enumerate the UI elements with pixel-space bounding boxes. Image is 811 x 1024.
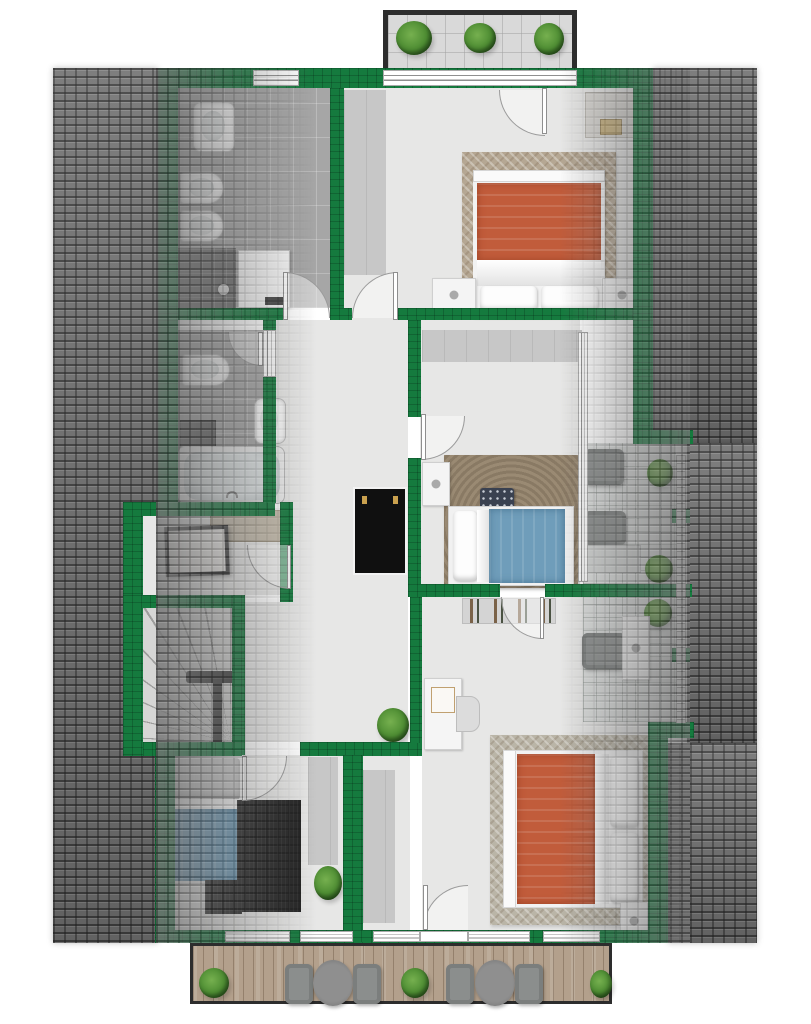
window-bath2-pass bbox=[263, 330, 276, 377]
sink bbox=[193, 102, 235, 152]
wall-bath2-right-b bbox=[263, 377, 276, 503]
wall-bed2-bottom-a bbox=[408, 584, 500, 597]
balcony-top bbox=[383, 10, 577, 72]
hallway-floor-upper bbox=[275, 320, 408, 502]
wall-bed2-bottom-b bbox=[545, 584, 692, 597]
terrace-railing bbox=[676, 455, 686, 723]
wall-left-lower bbox=[155, 742, 175, 943]
roof-right-lower bbox=[668, 743, 757, 943]
deck-bottom bbox=[190, 943, 612, 1004]
bed-pillow-bottom bbox=[610, 833, 638, 903]
bed-sheet-fold bbox=[595, 754, 609, 904]
door-leaf-bathroom-large bbox=[283, 272, 288, 320]
desk-chair bbox=[456, 696, 480, 732]
black-rug-main bbox=[237, 800, 301, 912]
deck-chair-4 bbox=[515, 964, 543, 1004]
picture-frame bbox=[164, 525, 230, 577]
wall-mid-a bbox=[178, 308, 283, 320]
desk-shelf bbox=[431, 687, 455, 713]
bed-duvet-orange bbox=[477, 183, 601, 261]
bed-duvet-blue bbox=[489, 509, 565, 583]
deck-chair-3 bbox=[446, 964, 474, 1004]
nightstand-middle bbox=[422, 462, 450, 506]
window-balcony-band bbox=[383, 70, 577, 86]
shower-head-icon bbox=[218, 284, 229, 295]
wall-left-mid bbox=[123, 502, 143, 756]
door-leaf-bathroom-small bbox=[258, 332, 263, 366]
hallway-plant bbox=[377, 708, 409, 742]
deck-planter-2 bbox=[401, 968, 429, 998]
window-bathroom-top bbox=[253, 70, 299, 86]
bed-footboard bbox=[504, 751, 516, 907]
wall-bath1-right bbox=[330, 88, 344, 320]
double-bed-orange-top bbox=[473, 170, 605, 318]
floor-plan-canvas bbox=[0, 0, 811, 1024]
wall-bed2-left-b bbox=[408, 458, 421, 584]
wardrobe-strip-top-right bbox=[344, 90, 386, 275]
roof-right-upper bbox=[653, 68, 757, 443]
black-rug-small bbox=[205, 880, 242, 914]
toilet bbox=[180, 172, 224, 204]
door-leaf-bedroom-bottom-left bbox=[242, 756, 247, 801]
terrace-armchair-upper bbox=[584, 511, 626, 545]
wall-terrace-step-top bbox=[633, 430, 693, 444]
dressing-stool bbox=[600, 119, 622, 135]
bed-duvet-orange bbox=[517, 754, 595, 904]
terrace-armchair-lower bbox=[582, 633, 626, 669]
bed-sheet-fold bbox=[477, 260, 601, 286]
deck-chair-1 bbox=[285, 964, 313, 1004]
deck-table-1 bbox=[313, 960, 353, 1006]
door-leaf-bedroom-top bbox=[393, 272, 398, 320]
balcony-planter-2 bbox=[464, 23, 496, 53]
wall-stairs-right bbox=[232, 595, 245, 755]
window-bottom-2 bbox=[300, 931, 353, 942]
deck-chair-2 bbox=[353, 964, 381, 1004]
wardrobe-strip-recess bbox=[363, 770, 395, 923]
balcony-planter-3 bbox=[534, 23, 564, 55]
window-bottom-3 bbox=[373, 931, 420, 942]
bathtub-faucet-icon bbox=[226, 491, 238, 498]
deck-table-2 bbox=[475, 960, 515, 1006]
bed-blanket-gray bbox=[172, 758, 240, 800]
cabinet-knob-right bbox=[393, 496, 398, 504]
bed-sheet bbox=[477, 510, 489, 582]
dressing-table bbox=[585, 92, 639, 138]
window-bed2-terrace bbox=[578, 332, 588, 582]
door-leaf-balcony bbox=[542, 88, 547, 134]
window-bottom-5 bbox=[543, 931, 600, 942]
door-leaf-deck bbox=[423, 885, 428, 930]
bed-pillow-top bbox=[610, 757, 638, 827]
wall-storage-step bbox=[123, 502, 275, 516]
shower bbox=[178, 248, 236, 310]
wall-bed3-top-b bbox=[300, 742, 422, 756]
window-bottom-4 bbox=[468, 931, 530, 942]
terrace-table-upper bbox=[581, 545, 641, 573]
wall-storage-stairs-divider bbox=[123, 595, 233, 608]
stairs-handrail-horizontal bbox=[186, 671, 238, 683]
terrace-cabinet bbox=[622, 616, 650, 680]
plant-bottom-left bbox=[314, 866, 342, 900]
wall-bed4-left bbox=[410, 597, 422, 743]
roof-right-mid bbox=[687, 443, 757, 743]
terrace-plant-2 bbox=[645, 555, 673, 583]
wall-mid-b bbox=[330, 308, 352, 320]
single-bed-blue-middle bbox=[448, 506, 574, 586]
door-leaf-bedroom-middle bbox=[421, 414, 426, 460]
door-leaf-bedroom-bottom-right bbox=[540, 597, 544, 639]
bed-duvet-blue bbox=[170, 809, 242, 881]
wall-right-lower bbox=[648, 738, 668, 943]
door-gap-deck bbox=[420, 931, 468, 942]
wall-terrace-step-bottom bbox=[648, 722, 694, 738]
wall-bed3-right bbox=[343, 755, 363, 942]
window-bottom-1 bbox=[225, 931, 290, 942]
wall-mid-c bbox=[398, 308, 653, 320]
nightstand-left bbox=[432, 278, 476, 312]
bidet bbox=[180, 210, 224, 242]
deck-planter-1 bbox=[199, 968, 229, 998]
wall-bed2-left-a bbox=[408, 320, 421, 417]
wardrobe-strip-middle bbox=[422, 330, 582, 362]
boiler-display bbox=[265, 297, 285, 305]
single-bed-blue-bottom bbox=[166, 752, 244, 884]
wardrobe-strip-bottom-left bbox=[308, 757, 338, 865]
terrace-plant-1 bbox=[647, 459, 673, 487]
wall-left-upper bbox=[158, 68, 178, 515]
double-bed-orange-bottom bbox=[503, 750, 643, 908]
terrace-sofa-upper bbox=[584, 449, 624, 485]
cabinet-knob-left bbox=[362, 496, 367, 504]
toilet-small-bath bbox=[182, 354, 230, 386]
bed-headboard bbox=[473, 170, 605, 182]
bed-pillow bbox=[453, 511, 477, 581]
bed-sheet-fold bbox=[172, 799, 240, 809]
wall-right-upper bbox=[633, 68, 653, 444]
hallway-black-cabinet bbox=[355, 489, 405, 573]
door-leaf-storage bbox=[287, 545, 291, 589]
balcony-planter-1 bbox=[396, 21, 432, 55]
deck-planter-3 bbox=[590, 970, 612, 998]
